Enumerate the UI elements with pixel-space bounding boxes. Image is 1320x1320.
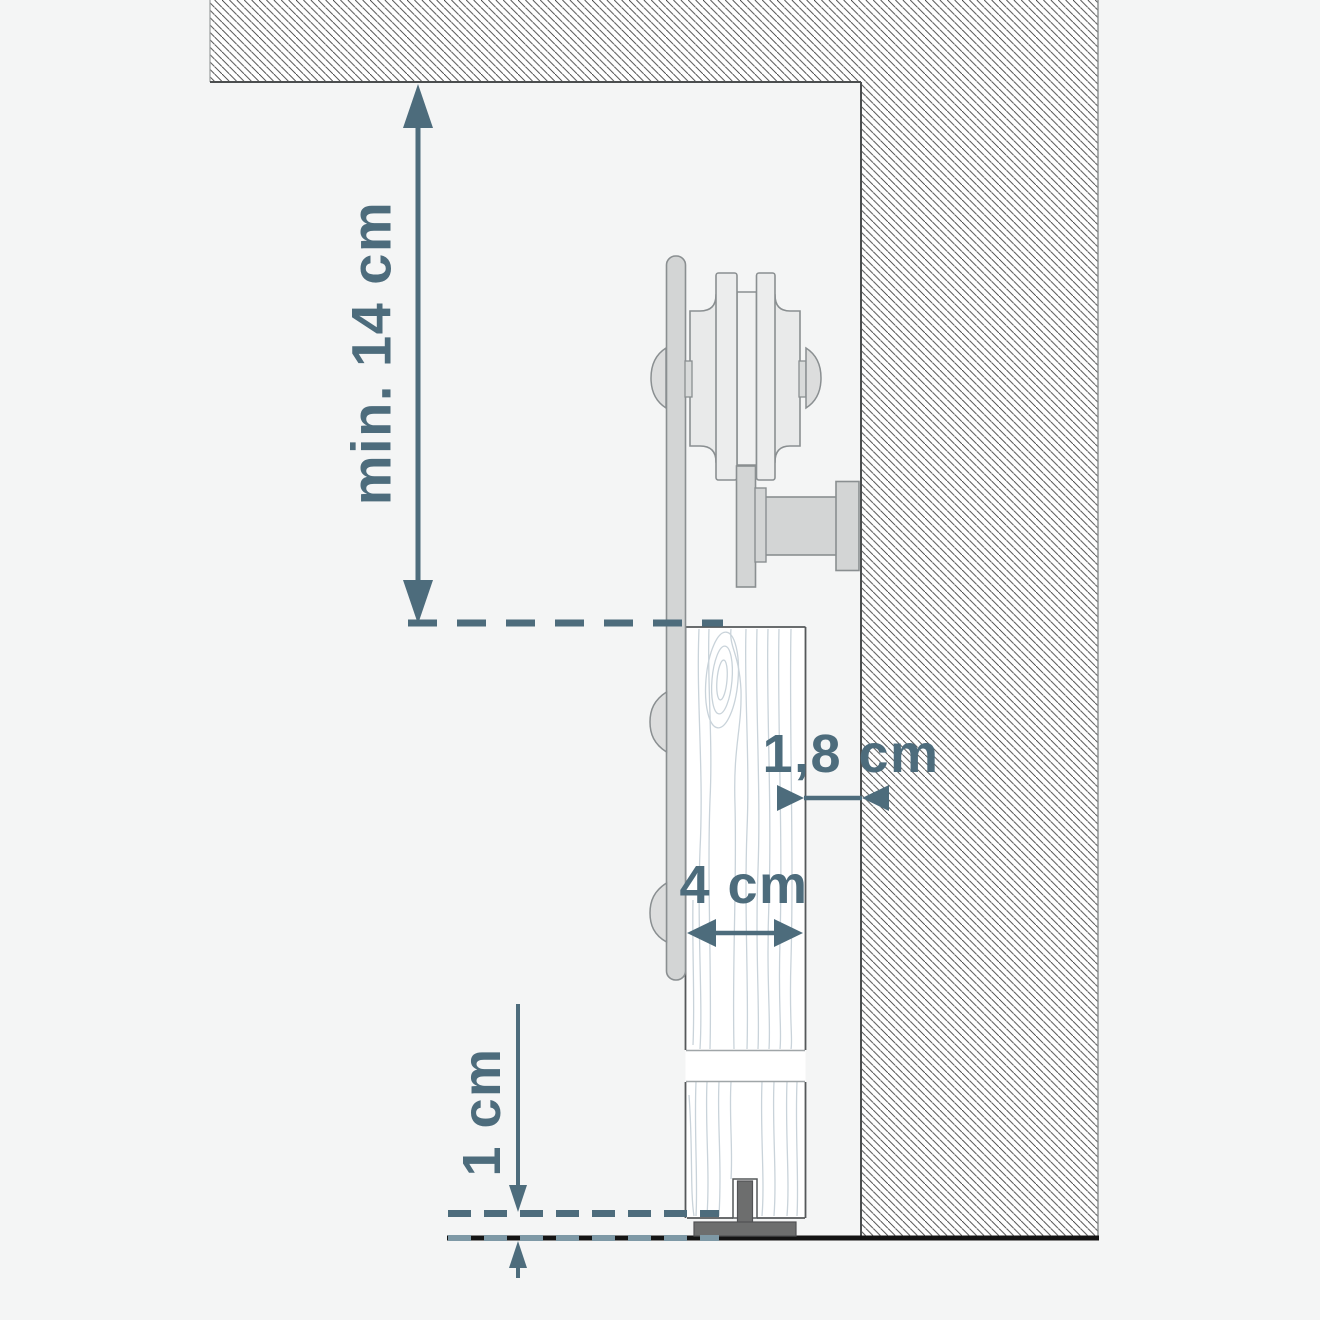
label-wall-gap: 1,8 cm: [762, 724, 939, 784]
bracket-spacer: [756, 497, 837, 555]
axle-washer-right: [799, 361, 806, 397]
label-door-thickness: 4 cm: [679, 855, 808, 915]
wheel-flange-right: [757, 273, 776, 480]
dimension-door-thickness: 4 cm: [679, 855, 808, 947]
label-ceiling-clearance: min. 14 cm: [340, 201, 403, 505]
door-fill: [686, 627, 806, 1218]
guide-stem: [738, 1181, 753, 1223]
label-floor-clearance: 1 cm: [452, 1047, 512, 1176]
bracket-wall-plate: [836, 482, 859, 571]
axle-washer-left: [685, 361, 692, 397]
wheel-flange-left: [716, 273, 737, 480]
installation-diagram: min. 14 cm 1,8 cm 4 cm 1 cm: [0, 0, 1320, 1320]
door-panel: [686, 627, 806, 1218]
wheel-groove: [737, 292, 757, 465]
rail-bar: [737, 466, 756, 587]
guide-base-plate: [694, 1222, 796, 1236]
diagram-canvas: min. 14 cm 1,8 cm 4 cm 1 cm: [0, 0, 1320, 1320]
diagram-background: [0, 0, 1320, 1320]
bracket-collar: [755, 488, 766, 562]
